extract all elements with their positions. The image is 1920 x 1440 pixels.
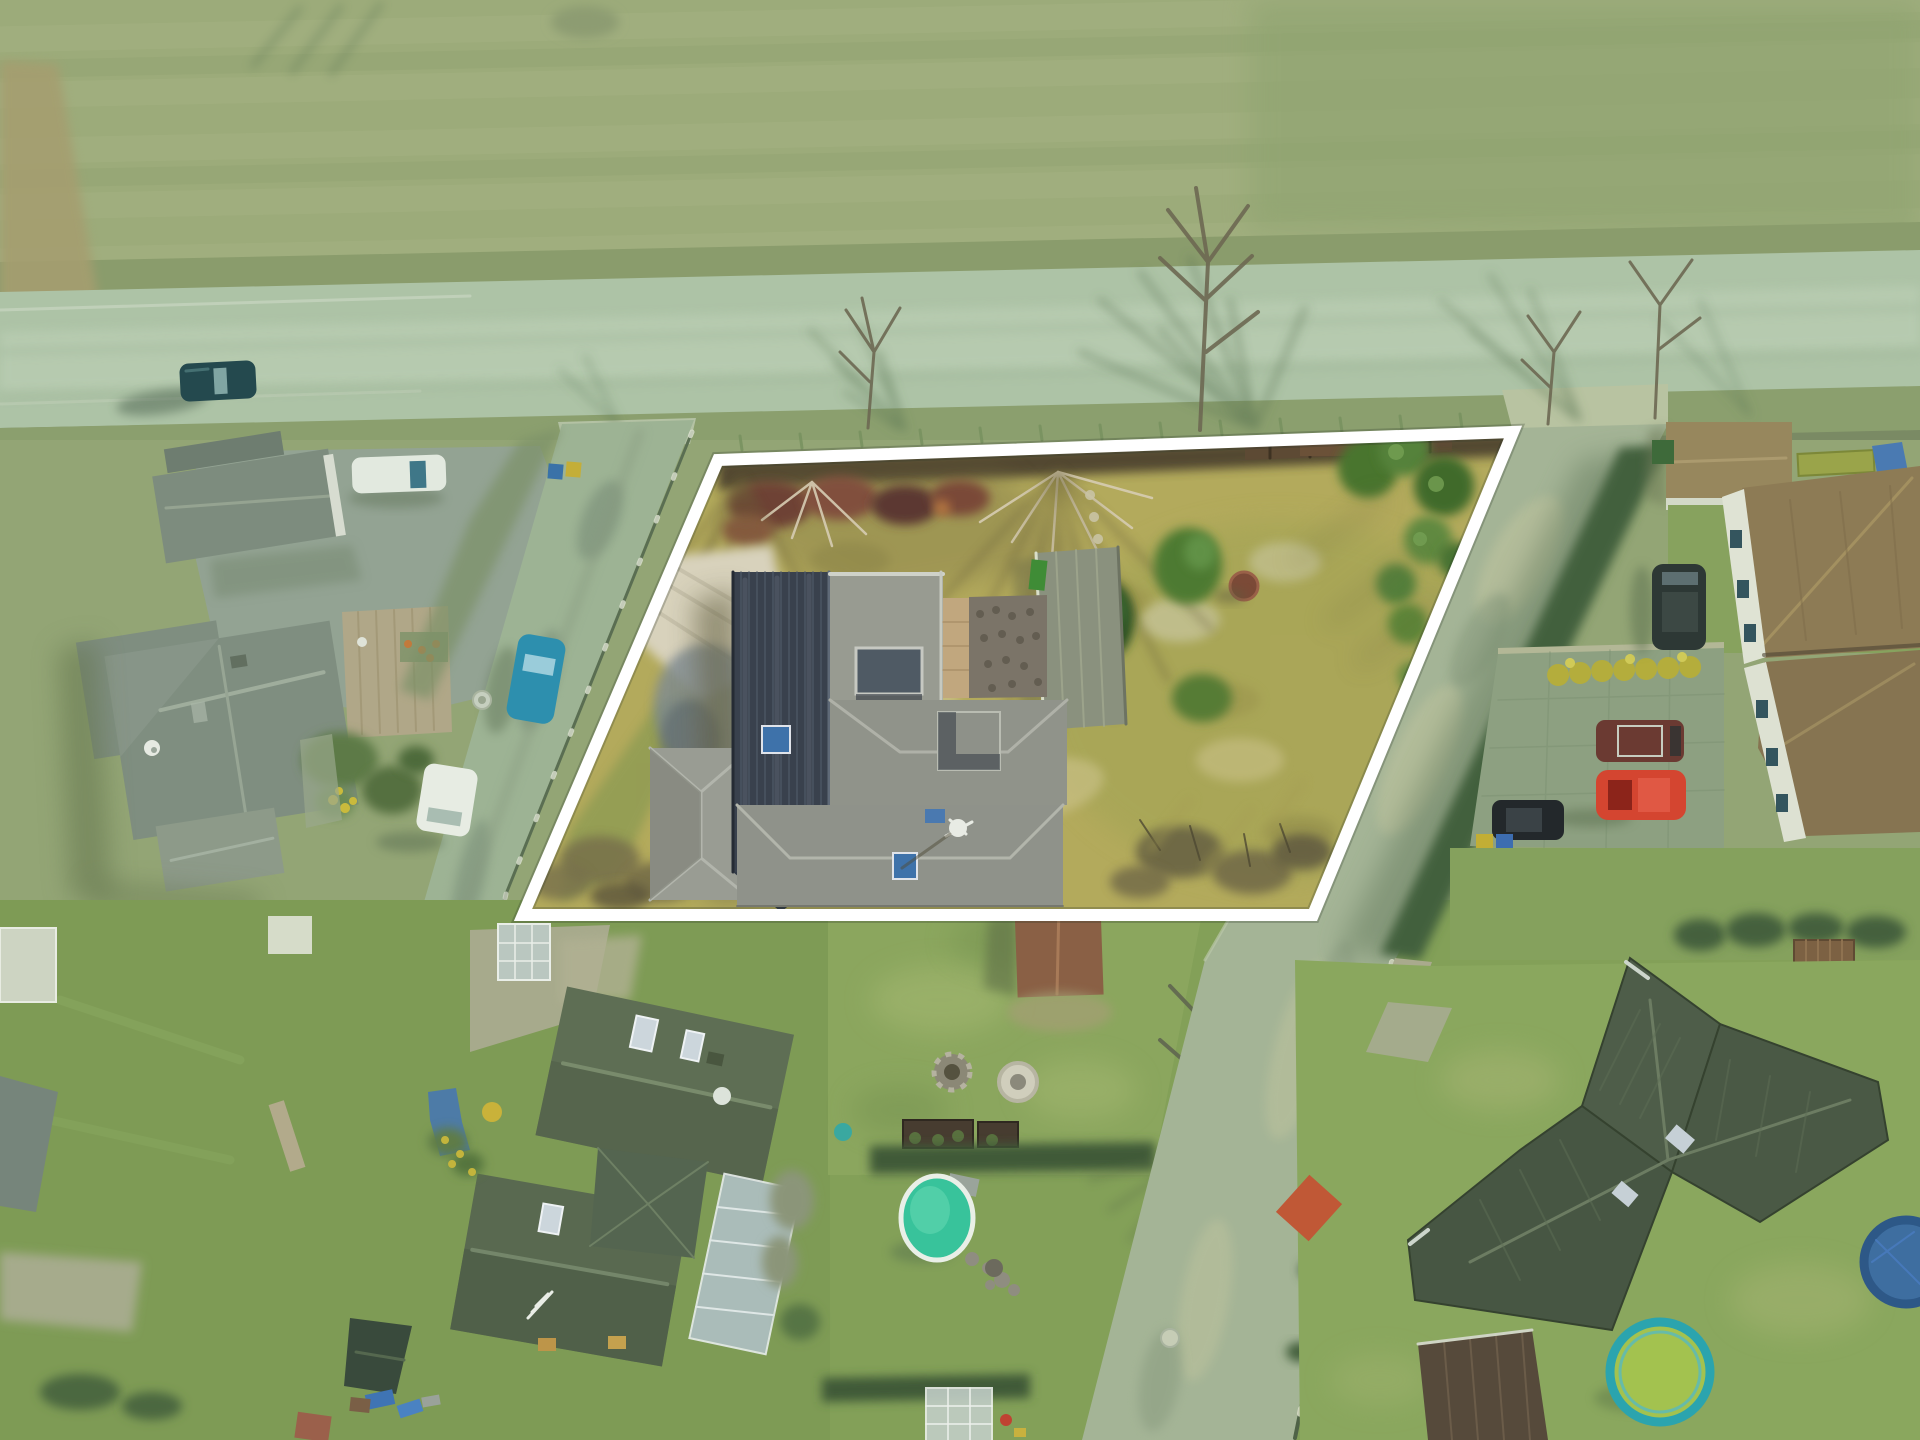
big-bush-mid xyxy=(1154,528,1222,604)
green-bins xyxy=(1652,440,1674,464)
patio-chair xyxy=(357,637,367,647)
green-mower xyxy=(1028,559,1047,591)
skylight-tiny xyxy=(925,809,945,823)
dirt-patch xyxy=(1008,992,1112,1032)
rockery xyxy=(770,1170,814,1230)
lawn-light xyxy=(1024,1060,1136,1120)
toy-red xyxy=(1000,1414,1012,1426)
roof-hatch xyxy=(608,1336,626,1349)
scrub-dark xyxy=(590,882,650,910)
clutter-crate xyxy=(349,1397,370,1413)
hedge xyxy=(40,1374,120,1410)
manhole xyxy=(1161,1329,1179,1347)
facade-window xyxy=(1744,624,1756,642)
yellow-umbrella xyxy=(482,1102,502,1122)
satellite-dish-arm xyxy=(151,747,157,753)
orange-accent xyxy=(934,500,950,516)
facade-window xyxy=(1776,794,1788,812)
conservatory-nw xyxy=(498,924,550,980)
dry-patch xyxy=(1330,1354,1430,1406)
suv-shadow xyxy=(1630,566,1654,654)
white-building-corner xyxy=(268,916,312,954)
grass-light xyxy=(1140,598,1220,642)
duplex-roof-a xyxy=(1742,466,1920,658)
van-windshield xyxy=(410,461,427,489)
teal-ball xyxy=(834,1123,852,1141)
house1-dish xyxy=(713,1087,731,1105)
field-mound xyxy=(551,6,619,38)
courtyard-recess xyxy=(856,648,922,694)
hedge-clump xyxy=(1726,913,1786,947)
paver-path xyxy=(943,598,969,698)
scrub xyxy=(1272,834,1332,870)
big-bush-mid-light xyxy=(1184,534,1216,570)
scene-layers xyxy=(0,0,1920,1440)
car-hood-highlight xyxy=(186,369,208,371)
stone-dark xyxy=(985,1259,1003,1277)
red-car-roof xyxy=(1638,778,1670,812)
pool-water-light xyxy=(910,1186,950,1234)
bin-yellow xyxy=(565,461,581,477)
hedge-clump xyxy=(1788,913,1844,943)
pool-round xyxy=(1610,1322,1710,1422)
bin-blue xyxy=(547,463,563,479)
aerial-photo xyxy=(0,0,1920,1440)
manhole-center xyxy=(478,696,486,704)
red-car-windshield xyxy=(1608,780,1632,810)
rockery-bush xyxy=(780,1304,820,1340)
roof-hatch xyxy=(538,1338,556,1351)
dark-suv-roof xyxy=(1662,592,1698,632)
dark-suv-windshield xyxy=(1662,572,1698,585)
grass-light xyxy=(1196,738,1284,782)
shed-shadow xyxy=(984,914,1016,996)
chimney xyxy=(230,654,248,668)
dry-patch xyxy=(1730,1264,1870,1336)
toy-yellow xyxy=(1014,1428,1026,1437)
table-shadow xyxy=(1214,589,1246,603)
yard-long-object xyxy=(1797,450,1874,476)
dry-patch xyxy=(1440,1050,1560,1110)
hedge-clump xyxy=(1674,919,1726,951)
facade-window xyxy=(1766,748,1778,766)
bush-lower xyxy=(1172,674,1232,722)
well-center xyxy=(1010,1074,1026,1090)
facade-window xyxy=(1730,530,1742,548)
field-right-tint xyxy=(1250,0,1920,240)
scrub xyxy=(1110,866,1170,898)
house2-skylight xyxy=(539,1203,564,1234)
maroon-bush xyxy=(871,485,939,525)
tan-path xyxy=(0,1252,142,1332)
raised-bed xyxy=(978,1122,1018,1147)
black-suv-windows xyxy=(1506,808,1542,832)
white-shed-far-left xyxy=(0,928,56,1002)
car-windshield xyxy=(213,368,227,395)
wagon-windshield xyxy=(1670,726,1681,756)
car-shadow xyxy=(376,832,444,852)
bottom-right-property xyxy=(1276,958,1920,1440)
fire-pit-center xyxy=(944,1064,960,1080)
hedgerow xyxy=(870,1142,1155,1174)
skylight-blue xyxy=(762,726,790,753)
facade-window xyxy=(1737,580,1749,598)
greenhouse xyxy=(926,1388,992,1440)
white-car xyxy=(415,762,479,838)
brick-path xyxy=(294,1412,331,1440)
bottom-left-block xyxy=(0,900,830,1440)
rockery xyxy=(762,1236,798,1288)
aerial-photo-stage xyxy=(0,0,1920,1440)
facade-window xyxy=(1756,700,1768,718)
white-van xyxy=(351,454,446,493)
tree-green xyxy=(1414,456,1474,516)
hedge xyxy=(122,1392,182,1420)
